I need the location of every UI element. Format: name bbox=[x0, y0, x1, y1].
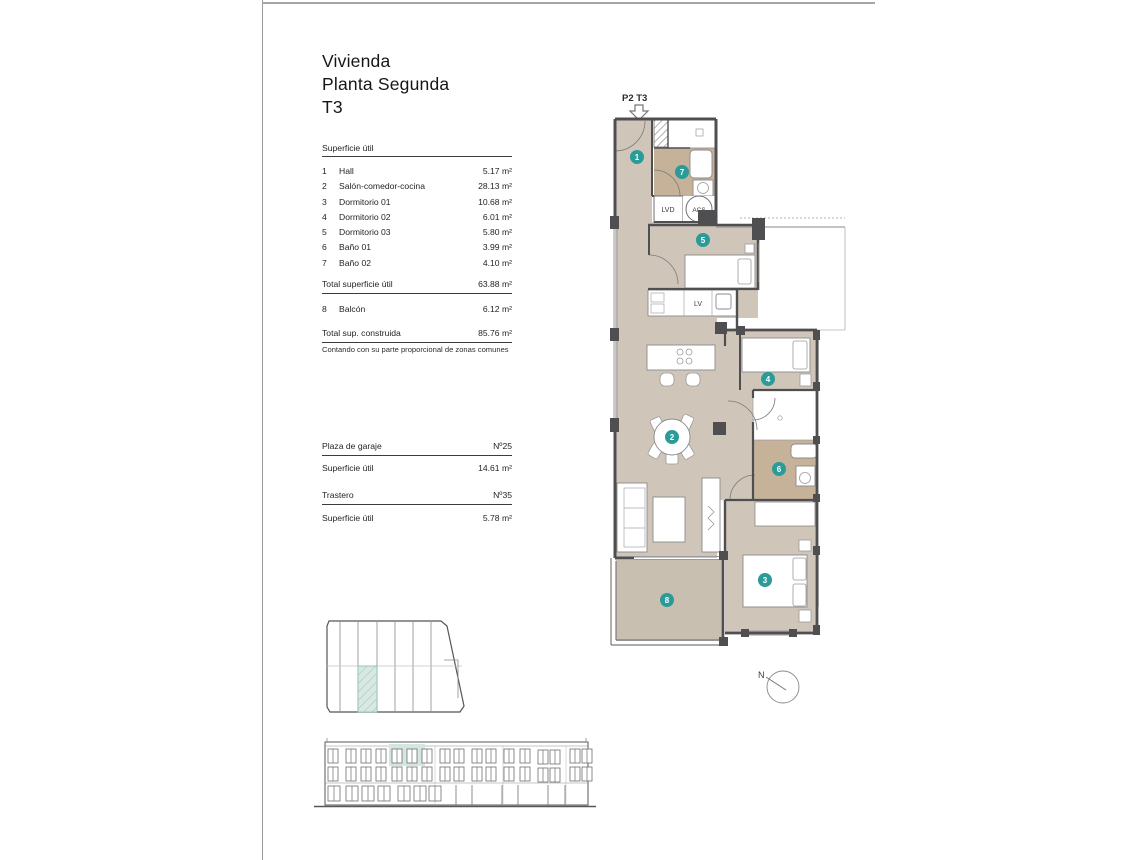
svg-text:7: 7 bbox=[680, 168, 685, 177]
svg-text:4: 4 bbox=[766, 375, 771, 384]
page-title-line-1: Vivienda bbox=[322, 50, 582, 73]
table-row: 5 Dormitorio 03 5.80 m² bbox=[322, 225, 512, 240]
trastero-row: Trastero Nº35 bbox=[322, 490, 512, 505]
kitchen-island bbox=[647, 345, 715, 370]
total-util-row: Total superficie útil 63.88 m² bbox=[322, 279, 512, 294]
svg-text:N: N bbox=[758, 670, 765, 680]
svg-text:6: 6 bbox=[777, 465, 782, 474]
svg-text:5: 5 bbox=[701, 236, 706, 245]
page-title-line-2: Planta Segunda bbox=[322, 73, 582, 96]
coffee-table bbox=[653, 497, 685, 542]
room-badge: 7 bbox=[675, 165, 689, 179]
trastero-area-row: Superficie útil 5.78 m² bbox=[322, 513, 512, 523]
dishwasher-label: LV bbox=[694, 301, 702, 308]
room-badge: 6 bbox=[772, 462, 786, 476]
table-row: 1 Hall 5.17 m² bbox=[322, 164, 512, 179]
page-top-edge bbox=[262, 2, 875, 4]
page-left-edge bbox=[262, 0, 263, 860]
garage-area-row: Superficie útil 14.61 m² bbox=[322, 463, 512, 473]
floor-plan: P2 T3 LVD ACS LV bbox=[602, 88, 852, 728]
page-title-line-3: T3 bbox=[322, 96, 582, 119]
table-row: 7 Baño 02 4.10 m² bbox=[322, 256, 512, 271]
sheet: Vivienda Planta Segunda T3 Superficie út… bbox=[0, 0, 1140, 860]
surface-table-header: Superficie útil bbox=[322, 143, 512, 157]
garage-row: Plaza de garaje Nº25 bbox=[322, 441, 512, 456]
sofa bbox=[617, 483, 647, 552]
bathtub bbox=[690, 150, 712, 178]
room-badge: 4 bbox=[761, 372, 775, 386]
svg-text:3: 3 bbox=[763, 576, 768, 585]
balcony-row: 8 Balcón 6.12 m² bbox=[322, 302, 512, 317]
building-elevation bbox=[286, 734, 604, 818]
table-row: 2 Salón-comedor-cocina 28.13 m² bbox=[322, 179, 512, 194]
room-badge: 8 bbox=[660, 593, 674, 607]
lvd-label: LVD bbox=[661, 207, 674, 214]
north-compass-icon: N bbox=[758, 670, 799, 703]
site-key-plan bbox=[313, 618, 471, 720]
plan-unit-label: P2 T3 bbox=[622, 93, 647, 104]
room-badge: 5 bbox=[696, 233, 710, 247]
table-row: 4 Dormitorio 02 6.01 m² bbox=[322, 210, 512, 225]
total-built-row: Total sup. construida 85.76 m² bbox=[322, 328, 512, 343]
footnote: Contando con su parte proporcional de zo… bbox=[322, 345, 512, 354]
wardrobe bbox=[755, 502, 815, 526]
table-row: 6 Baño 01 3.99 m² bbox=[322, 240, 512, 255]
svg-text:2: 2 bbox=[670, 433, 675, 442]
table-row: 3 Dormitorio 01 10.68 m² bbox=[322, 195, 512, 210]
shaft-hatch bbox=[654, 120, 668, 147]
room-badge: 2 bbox=[665, 430, 679, 444]
svg-text:1: 1 bbox=[635, 153, 640, 162]
surface-table: 1 Hall 5.17 m² 2 Salón-comedor-cocina 28… bbox=[322, 164, 512, 271]
room-badge: 1 bbox=[630, 150, 644, 164]
svg-text:8: 8 bbox=[665, 596, 670, 605]
room-badge: 3 bbox=[758, 573, 772, 587]
bathtub bbox=[791, 444, 817, 458]
